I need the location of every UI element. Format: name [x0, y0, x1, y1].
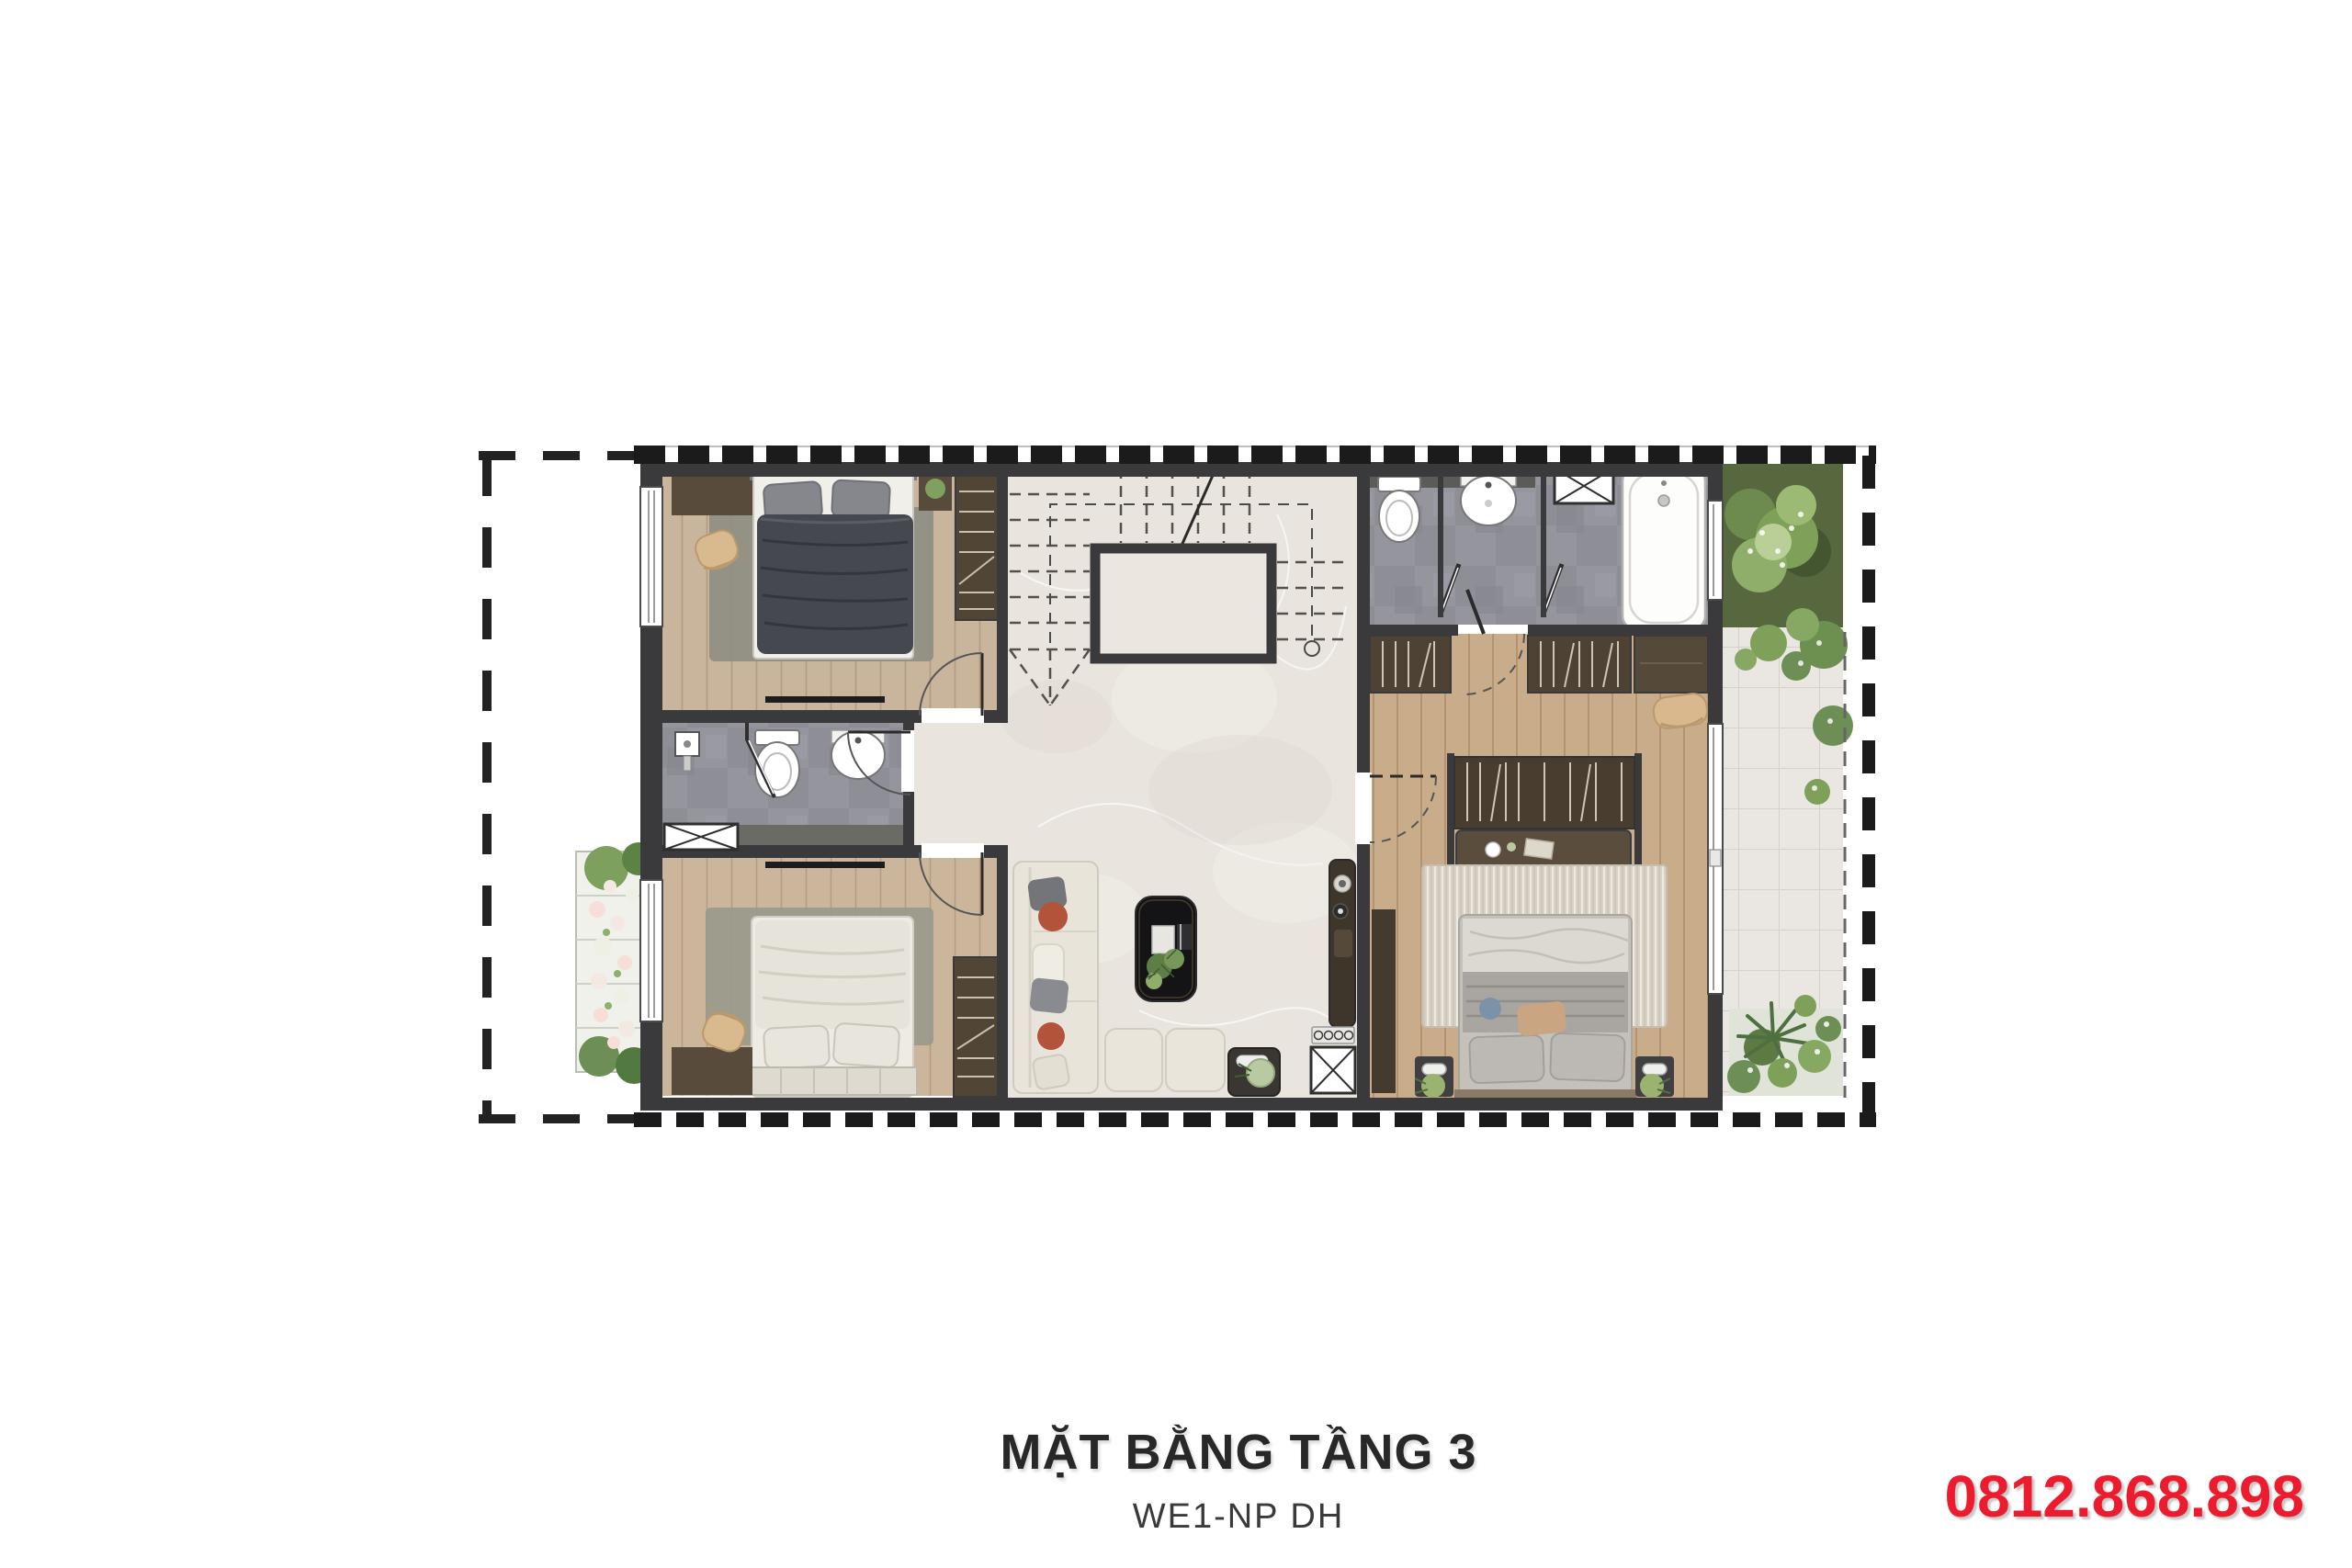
ottoman — [1105, 1029, 1162, 1091]
cabinet-crossed — [1311, 1047, 1355, 1093]
double-bed-gray — [1454, 915, 1636, 1100]
stove — [1312, 1027, 1354, 1043]
plant-pot — [925, 479, 945, 499]
window — [640, 880, 662, 1021]
window — [1708, 724, 1723, 994]
terrace-corner-bed — [1727, 995, 1843, 1096]
wardrobe — [955, 471, 998, 620]
tv — [765, 696, 885, 703]
stair-void — [1095, 548, 1272, 659]
double-bed-dark — [750, 469, 917, 659]
shaft-crossed-box — [664, 824, 738, 850]
coffee-table — [1136, 897, 1196, 1001]
wardrobe — [954, 957, 998, 1097]
window — [640, 487, 662, 626]
wardrobe-unit — [1447, 753, 1642, 869]
wall-top — [640, 462, 1709, 477]
page: MẶT BẰNG TẦNG 3 WE1-NP DH 0812.868.898 — [0, 0, 2352, 1568]
nightstand-right — [1635, 1056, 1674, 1098]
closet-row — [1370, 636, 1708, 693]
wall-bottom — [640, 1098, 1709, 1111]
bathtub — [1623, 467, 1705, 630]
plan-code: WE1-NP DH — [1133, 1497, 1345, 1537]
corridor-floor — [903, 721, 1008, 845]
terrace — [1723, 464, 1853, 1096]
toilet — [755, 730, 799, 797]
hotline-phone-number: 0812.868.898 — [1945, 1462, 2305, 1530]
double-bed-cream — [748, 917, 917, 1097]
toilet — [1378, 477, 1420, 542]
wash-basin — [1461, 475, 1516, 525]
stone-strip — [726, 825, 903, 845]
tv — [765, 862, 885, 868]
floor-plan — [0, 0, 2352, 1568]
ottoman — [1166, 1029, 1225, 1091]
terracotta-pillow — [1038, 902, 1068, 931]
nightstand-left — [1415, 1056, 1453, 1098]
wash-basin — [831, 730, 885, 779]
dresser — [1372, 909, 1396, 1093]
plan-title: MẶT BẰNG TẦNG 3 — [1001, 1424, 1477, 1481]
sofa — [1013, 862, 1098, 1093]
window — [1708, 501, 1723, 600]
vanity-console — [1456, 830, 1631, 869]
terracotta-pillow — [1037, 1022, 1065, 1050]
desk — [672, 1047, 752, 1095]
side-table — [1228, 1048, 1280, 1096]
